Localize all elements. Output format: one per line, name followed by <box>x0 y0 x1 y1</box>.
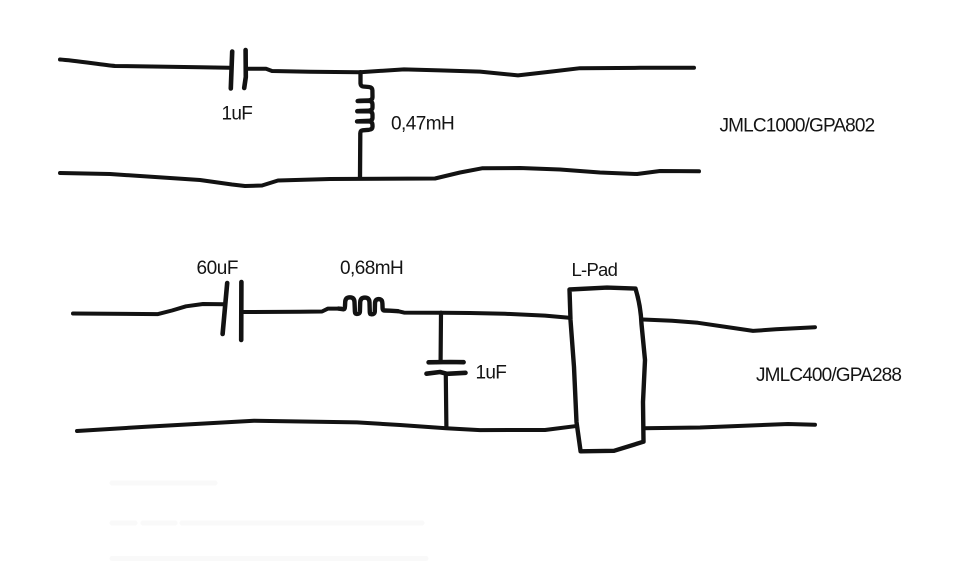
svg-text:0,47mH: 0,47mH <box>391 113 454 134</box>
svg-text:1uF: 1uF <box>222 104 253 125</box>
svg-text:60uF: 60uF <box>197 258 239 279</box>
svg-text:L-Pad: L-Pad <box>572 259 618 280</box>
svg-text:JMLC1000/GPA802: JMLC1000/GPA802 <box>720 116 875 137</box>
svg-text:0,68mH: 0,68mH <box>340 258 403 279</box>
svg-text:1uF: 1uF <box>476 362 507 383</box>
svg-text:JMLC400/GPA288: JMLC400/GPA288 <box>756 365 901 386</box>
